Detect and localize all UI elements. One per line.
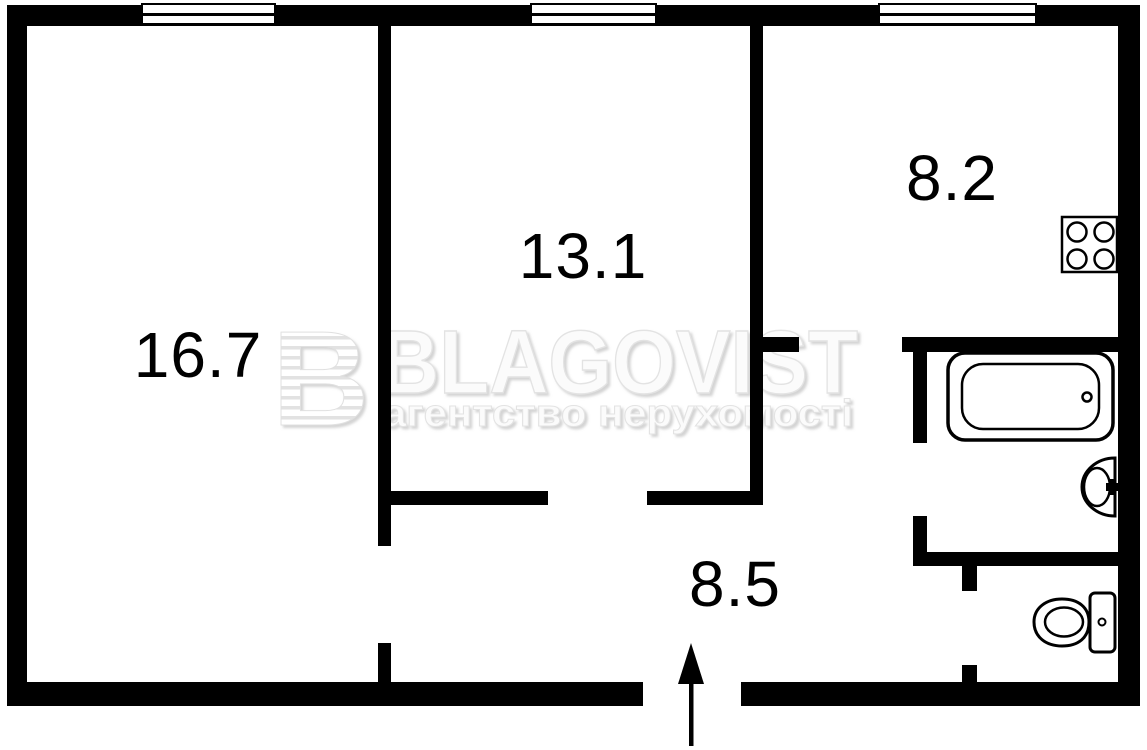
entry-arrow-icon xyxy=(678,643,704,746)
room-area-label: 8.5 xyxy=(689,547,781,621)
bathtub-icon xyxy=(948,353,1113,440)
floor-plan: B BLAGOVIST агентство нерухомості xyxy=(0,0,1147,750)
room-area-label: 13.1 xyxy=(519,219,648,293)
room-area-label: 16.7 xyxy=(134,318,263,392)
stove-icon xyxy=(1062,217,1117,272)
room-area-label: 8.2 xyxy=(906,141,998,215)
sink-icon xyxy=(1082,458,1118,516)
toilet-icon xyxy=(1034,593,1115,652)
